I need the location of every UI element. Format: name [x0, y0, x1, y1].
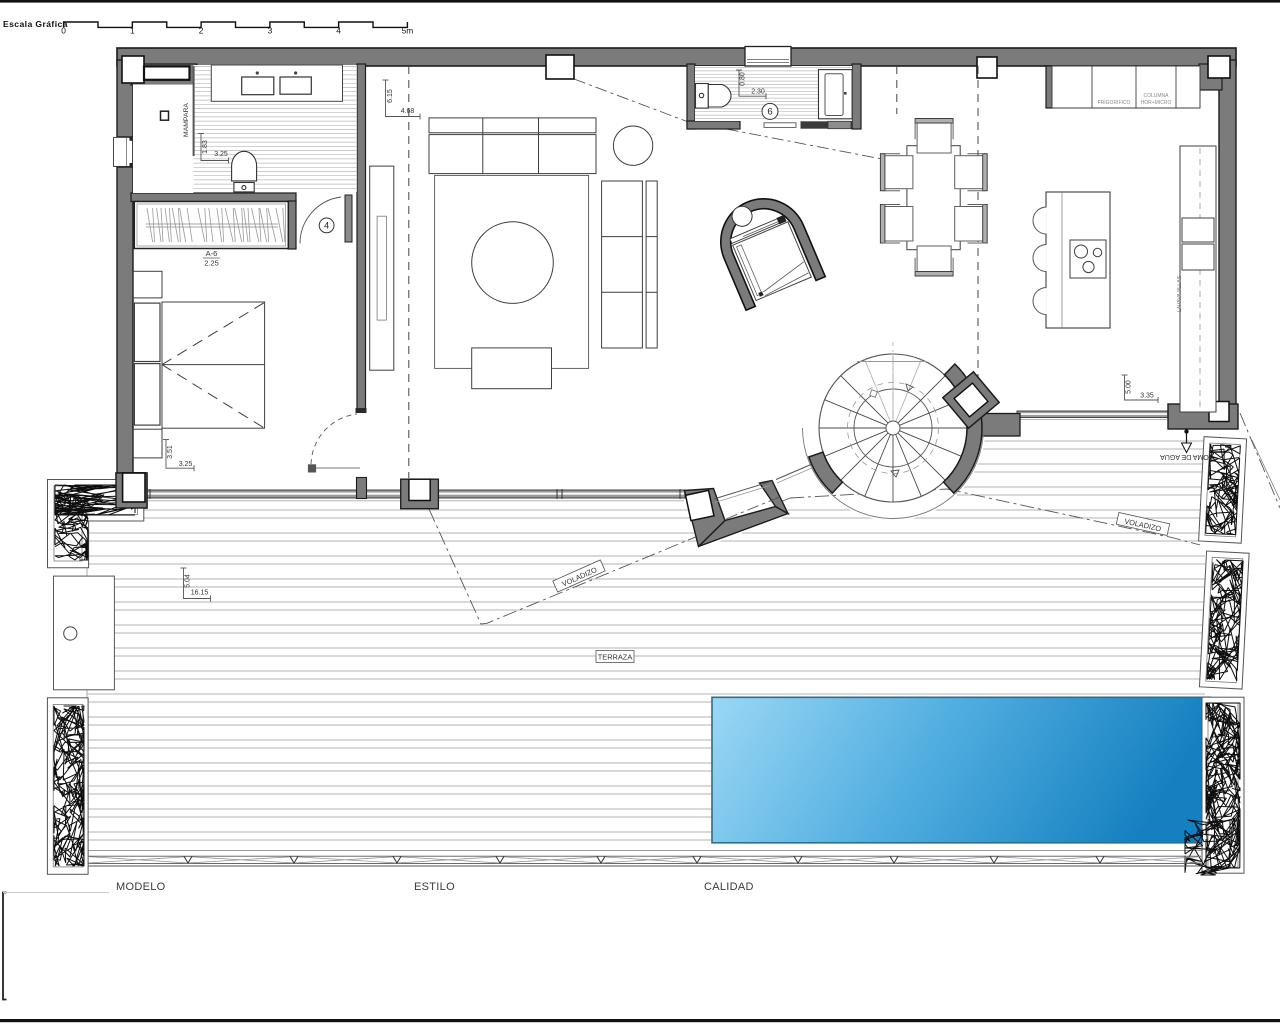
svg-text:6: 6 — [767, 107, 772, 118]
svg-text:5m: 5m — [402, 26, 414, 36]
svg-text:5.04: 5.04 — [185, 574, 192, 588]
svg-text:Escala Gráfica: Escala Gráfica — [3, 19, 68, 29]
svg-text:2.30: 2.30 — [751, 89, 765, 96]
svg-text:0.80: 0.80 — [740, 72, 747, 86]
svg-text:3.35: 3.35 — [1140, 393, 1154, 400]
svg-text:4.68: 4.68 — [401, 108, 415, 115]
svg-text:TOMA DE AGUA: TOMA DE AGUA — [1160, 453, 1213, 460]
svg-text:6.15: 6.15 — [387, 89, 394, 103]
svg-text:MAMPARA: MAMPARA — [183, 103, 190, 137]
svg-text:HOR+MICRO: HOR+MICRO — [1141, 100, 1172, 106]
svg-text:3.25: 3.25 — [179, 461, 193, 468]
svg-text:4: 4 — [336, 26, 341, 36]
svg-text:1.83: 1.83 — [202, 140, 209, 154]
svg-text:16.15: 16.15 — [191, 590, 209, 597]
svg-text:LAVAVAJILLAS: LAVAVAJILLAS — [1177, 275, 1183, 312]
svg-text:0: 0 — [61, 26, 66, 36]
svg-text:3: 3 — [268, 26, 273, 36]
svg-text:3.51: 3.51 — [167, 445, 174, 459]
svg-text:1: 1 — [130, 26, 135, 36]
svg-text:COLUMNA: COLUMNA — [1143, 93, 1169, 99]
svg-text:2: 2 — [199, 26, 204, 36]
svg-text:MODELO: MODELO — [116, 881, 166, 893]
svg-text:TERRAZA: TERRAZA — [598, 653, 633, 662]
svg-text:CALIDAD: CALIDAD — [704, 881, 754, 893]
svg-text:FRIGORIFICO: FRIGORIFICO — [1098, 100, 1131, 106]
svg-text:3.25: 3.25 — [214, 151, 228, 158]
svg-text:5.00: 5.00 — [1126, 380, 1133, 394]
svg-text:A-6: A-6 — [206, 249, 218, 258]
svg-text:ESTILO: ESTILO — [414, 881, 455, 893]
svg-text:4: 4 — [324, 221, 329, 231]
svg-text:2.25: 2.25 — [204, 259, 219, 268]
